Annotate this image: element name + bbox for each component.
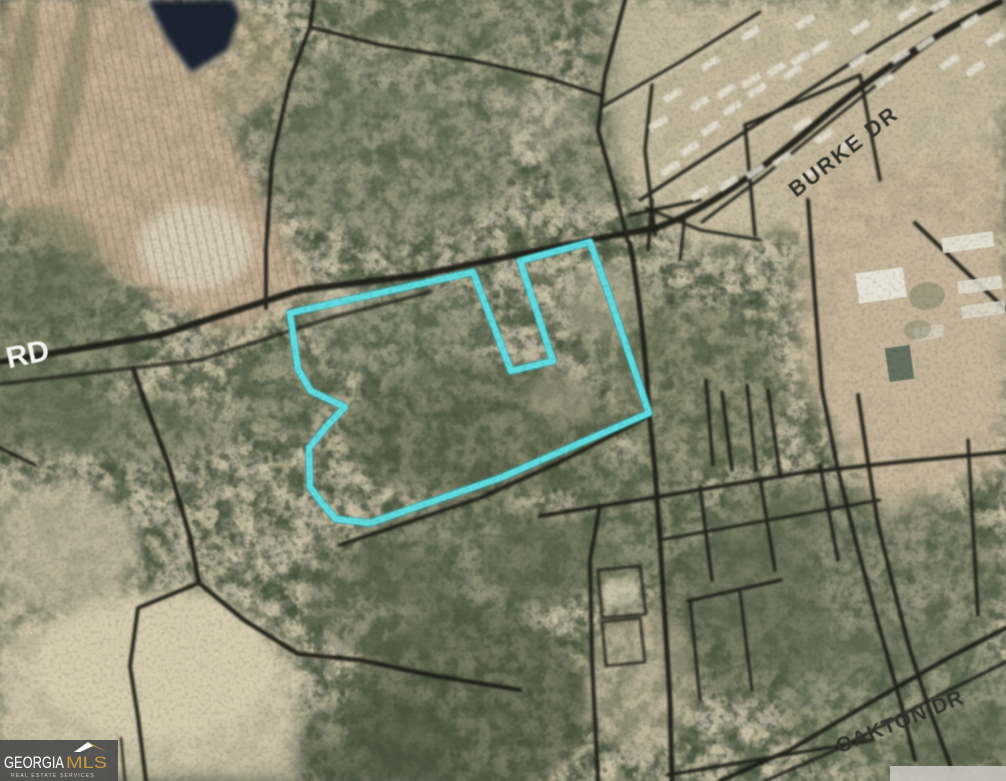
svg-text:REAL ESTATE SERVICES: REAL ESTATE SERVICES: [11, 773, 95, 779]
svg-text:GEORGIA: GEORGIA: [4, 754, 64, 772]
svg-text:MLS: MLS: [66, 754, 107, 772]
